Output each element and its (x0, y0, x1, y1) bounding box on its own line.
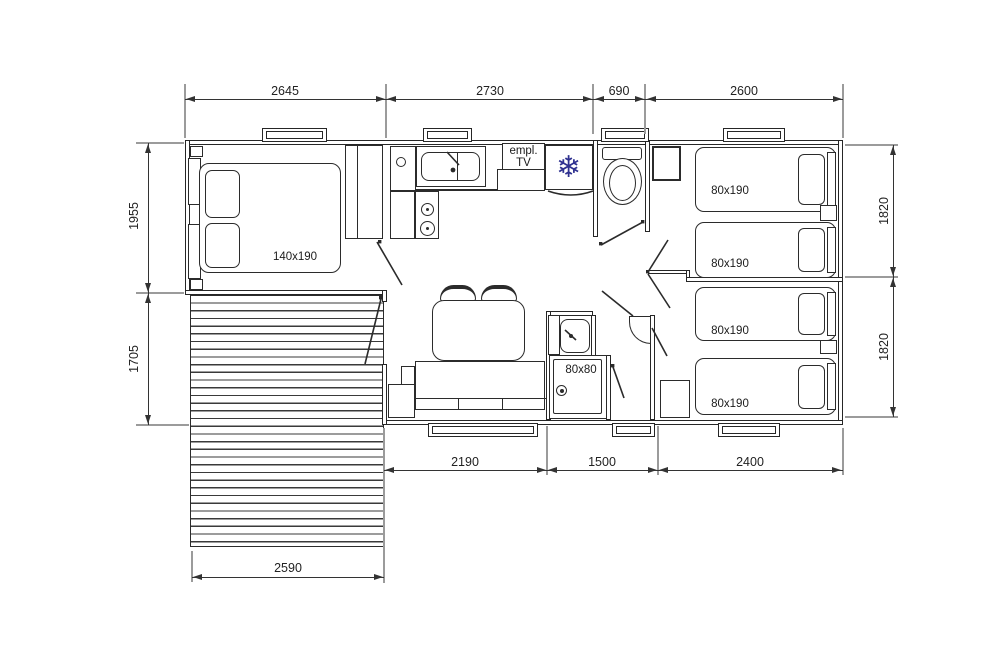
extension-line (385, 84, 387, 138)
arrowhead (833, 96, 842, 102)
dim-deck: 2590 (238, 561, 338, 575)
single-bed-1-label: 80x190 (702, 185, 758, 197)
wardrobe-divider (357, 146, 358, 238)
headboard (827, 292, 836, 336)
extension-line (136, 142, 184, 144)
dim-right-2: 1820 (877, 317, 891, 377)
sink-divider (457, 153, 458, 180)
sofa-backrest-line (416, 398, 546, 399)
window-bedroom-north (262, 128, 327, 142)
pillow (798, 365, 825, 409)
wall-living-west-lower (382, 364, 387, 425)
fridge-door-arc (548, 191, 593, 195)
arrowhead (387, 96, 396, 102)
arrowhead (890, 407, 896, 416)
bedroom1-door-leaf (648, 240, 668, 272)
dimension-line-deck (192, 577, 384, 578)
tv-stand (497, 169, 545, 191)
wall-living-west-upper (382, 290, 387, 302)
dim-bottom-1: 2190 (415, 455, 515, 469)
arrowhead (890, 267, 896, 276)
window-bedroom1 (723, 128, 785, 142)
arrowhead (376, 96, 385, 102)
window-wc (601, 128, 649, 142)
double-bed-label: 140x190 (250, 251, 340, 263)
bedroom-corner-shelf-n (190, 146, 203, 157)
sofa-seat-divider (458, 398, 459, 410)
shower-label: 80x80 (558, 364, 604, 376)
extension-line (845, 416, 898, 418)
floor-plan: 140x190 empl. TV ❄ 80x190 80x190 80x190 (0, 0, 1000, 667)
dim-left-1: 1955 (127, 186, 141, 246)
headboard (827, 363, 836, 410)
shower-door-leaf (613, 367, 624, 398)
wardrobe-bedroom1 (652, 146, 681, 181)
kitchen-hob-ring (396, 157, 406, 167)
wall-bath-east-upper (591, 315, 596, 357)
arrowhead (145, 415, 151, 424)
headboard (827, 227, 836, 273)
pillow (205, 170, 240, 218)
stove (415, 191, 439, 239)
wardrobe-bedroom2 (660, 380, 690, 418)
extension-line (136, 292, 184, 294)
wardrobe-master (345, 145, 383, 239)
bedroom2-door-leaf (648, 274, 670, 308)
arrowhead (145, 294, 151, 303)
wall-wc-bedroom1 (645, 140, 650, 232)
bedroom-corner-shelf-s (190, 279, 203, 290)
single-bed-2-label: 80x190 (702, 258, 758, 270)
dining-table (432, 300, 525, 361)
wall-hall-jog (648, 270, 690, 274)
single-bed-3-label: 80x190 (702, 325, 758, 337)
arrowhead (659, 467, 668, 473)
dim-bottom-3: 2400 (700, 455, 800, 469)
tv-label-line2: TV (503, 157, 544, 169)
arrowhead (537, 467, 546, 473)
window-bedroom2 (718, 423, 780, 437)
arrowhead (374, 574, 383, 580)
kitchen-cabinet (390, 191, 415, 239)
burner-dot (426, 227, 429, 230)
dim-top-3: 690 (593, 84, 645, 98)
kitchen-unit-left (390, 146, 416, 191)
extension-line (136, 424, 189, 426)
sofa-seat-divider (502, 398, 503, 410)
tv-label-line1: empl. (503, 145, 544, 157)
wall-bedroom-south (185, 290, 387, 295)
kitchen-sink-unit (416, 146, 486, 187)
extension-line (383, 428, 385, 583)
arrowhead (890, 146, 896, 155)
dim-bottom-2: 1500 (552, 455, 652, 469)
hinge-dot (599, 242, 602, 245)
arrowhead (145, 144, 151, 153)
nightstand (820, 340, 837, 354)
wall-east (838, 140, 843, 425)
arrowhead (193, 574, 202, 580)
toilet-bowl-inner (609, 165, 636, 201)
window-kitchen (423, 128, 472, 142)
snowflake-icon: ❄ (556, 153, 581, 183)
pillow (205, 223, 240, 268)
headboard (827, 152, 836, 207)
hinge-dot (378, 240, 381, 243)
corner-unit (388, 384, 415, 418)
extension-line (842, 428, 844, 475)
master-bedroom-door-leaf (377, 242, 402, 285)
arrowhead (647, 96, 656, 102)
sink-basin (421, 152, 480, 181)
vanity-cabinet (548, 315, 560, 355)
dim-right-1: 1820 (877, 181, 891, 241)
extension-line (842, 84, 844, 138)
deck-terrace (190, 295, 384, 547)
arrowhead (832, 467, 841, 473)
arrowhead (385, 467, 394, 473)
wc-door-leaf (601, 222, 643, 245)
dim-top-1: 2645 (235, 84, 335, 98)
hall-corner-cabinet (629, 316, 651, 344)
arrowhead (583, 96, 592, 102)
dim-left-2: 1705 (127, 329, 141, 389)
hinge-dot (641, 220, 644, 223)
tv-emplacement-box: empl. TV (502, 143, 545, 170)
dimension-line-bottom (384, 470, 843, 471)
shower-drain-dot (560, 389, 564, 393)
dim-top-4: 2600 (694, 84, 794, 98)
pillow (798, 293, 825, 335)
dimension-line-top (185, 99, 843, 100)
arrowhead (890, 278, 896, 287)
nightstand (820, 205, 837, 221)
pillow (798, 154, 825, 205)
arrowhead (186, 96, 195, 102)
washbasin (560, 319, 590, 353)
burner-dot (426, 208, 429, 211)
pillow (798, 228, 825, 272)
wall-kitchen-wc (593, 140, 598, 237)
sofa-bench (415, 361, 545, 410)
arrowhead (145, 283, 151, 292)
hinge-dot (611, 364, 614, 367)
dim-top-2: 2730 (440, 84, 540, 98)
window-hall (612, 423, 655, 437)
single-bed-4-label: 80x190 (702, 398, 758, 410)
window-living (428, 423, 538, 437)
bathroom-door-leaf (602, 291, 633, 316)
extension-line (184, 84, 186, 138)
